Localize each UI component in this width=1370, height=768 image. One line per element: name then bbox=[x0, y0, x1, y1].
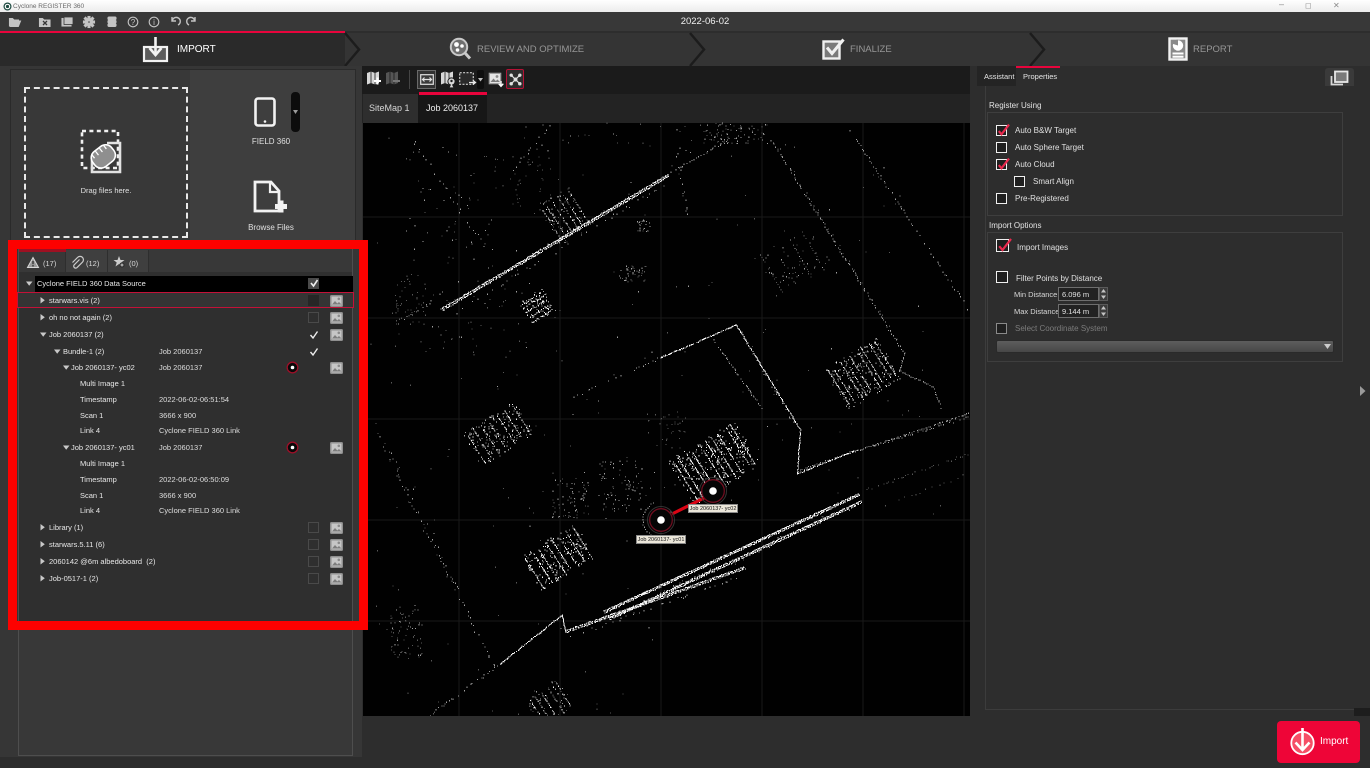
svg-text:i: i bbox=[153, 18, 155, 27]
svg-text:?: ? bbox=[131, 18, 136, 27]
